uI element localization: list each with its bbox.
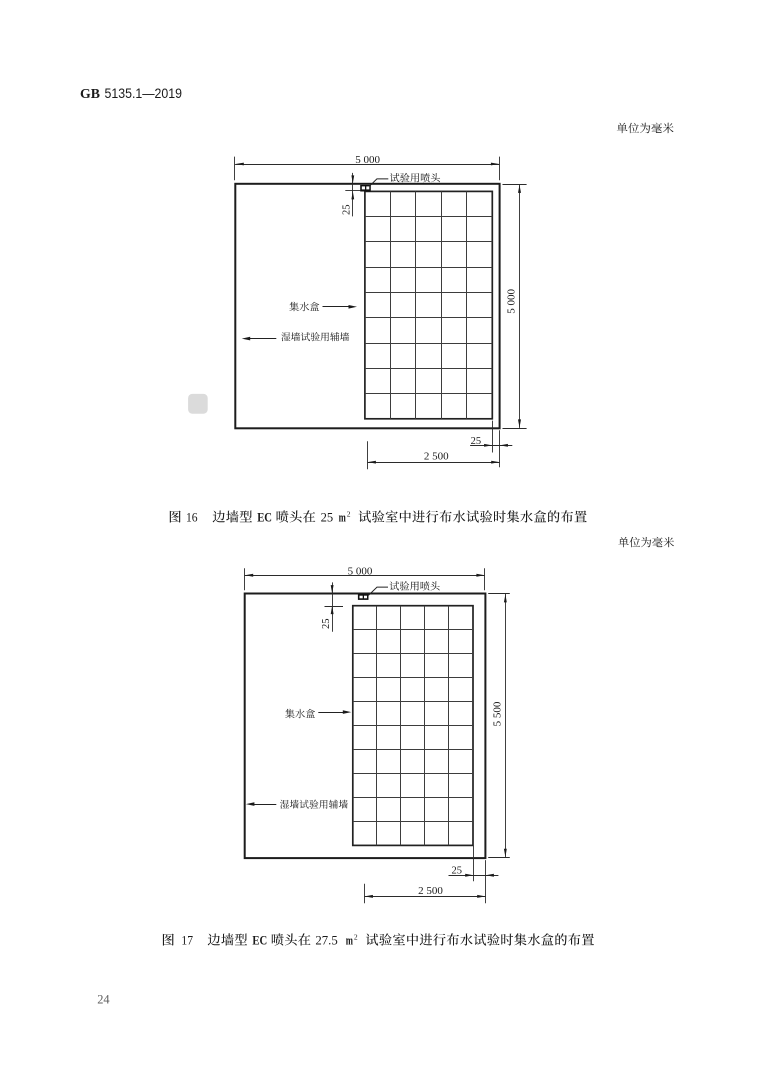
svg-text:5 000: 5 000 (355, 154, 380, 166)
svg-text:5 000: 5 000 (348, 565, 373, 577)
svg-text:25: 25 (321, 511, 334, 525)
svg-text:25: 25 (471, 436, 482, 447)
svg-text:m: m (339, 511, 347, 525)
svg-text:EC: EC (252, 933, 267, 948)
svg-text:2 500: 2 500 (418, 885, 443, 897)
svg-text:17: 17 (181, 934, 193, 948)
svg-text:16: 16 (186, 511, 198, 525)
svg-text:25: 25 (321, 619, 332, 630)
svg-text:2 500: 2 500 (424, 451, 449, 463)
svg-text:25: 25 (341, 205, 352, 216)
svg-text:27.5: 27.5 (315, 934, 337, 948)
svg-text:5135.1—2019: 5135.1—2019 (105, 86, 183, 101)
svg-text:25: 25 (452, 865, 463, 876)
svg-text:m: m (346, 934, 354, 948)
svg-text:EC: EC (257, 510, 272, 525)
svg-text:2: 2 (354, 932, 358, 941)
svg-text:5 500: 5 500 (492, 701, 504, 726)
svg-text:5 000: 5 000 (506, 289, 518, 314)
svg-text:24: 24 (97, 992, 109, 1006)
svg-text:GB: GB (80, 86, 100, 101)
svg-text:2: 2 (347, 509, 351, 518)
